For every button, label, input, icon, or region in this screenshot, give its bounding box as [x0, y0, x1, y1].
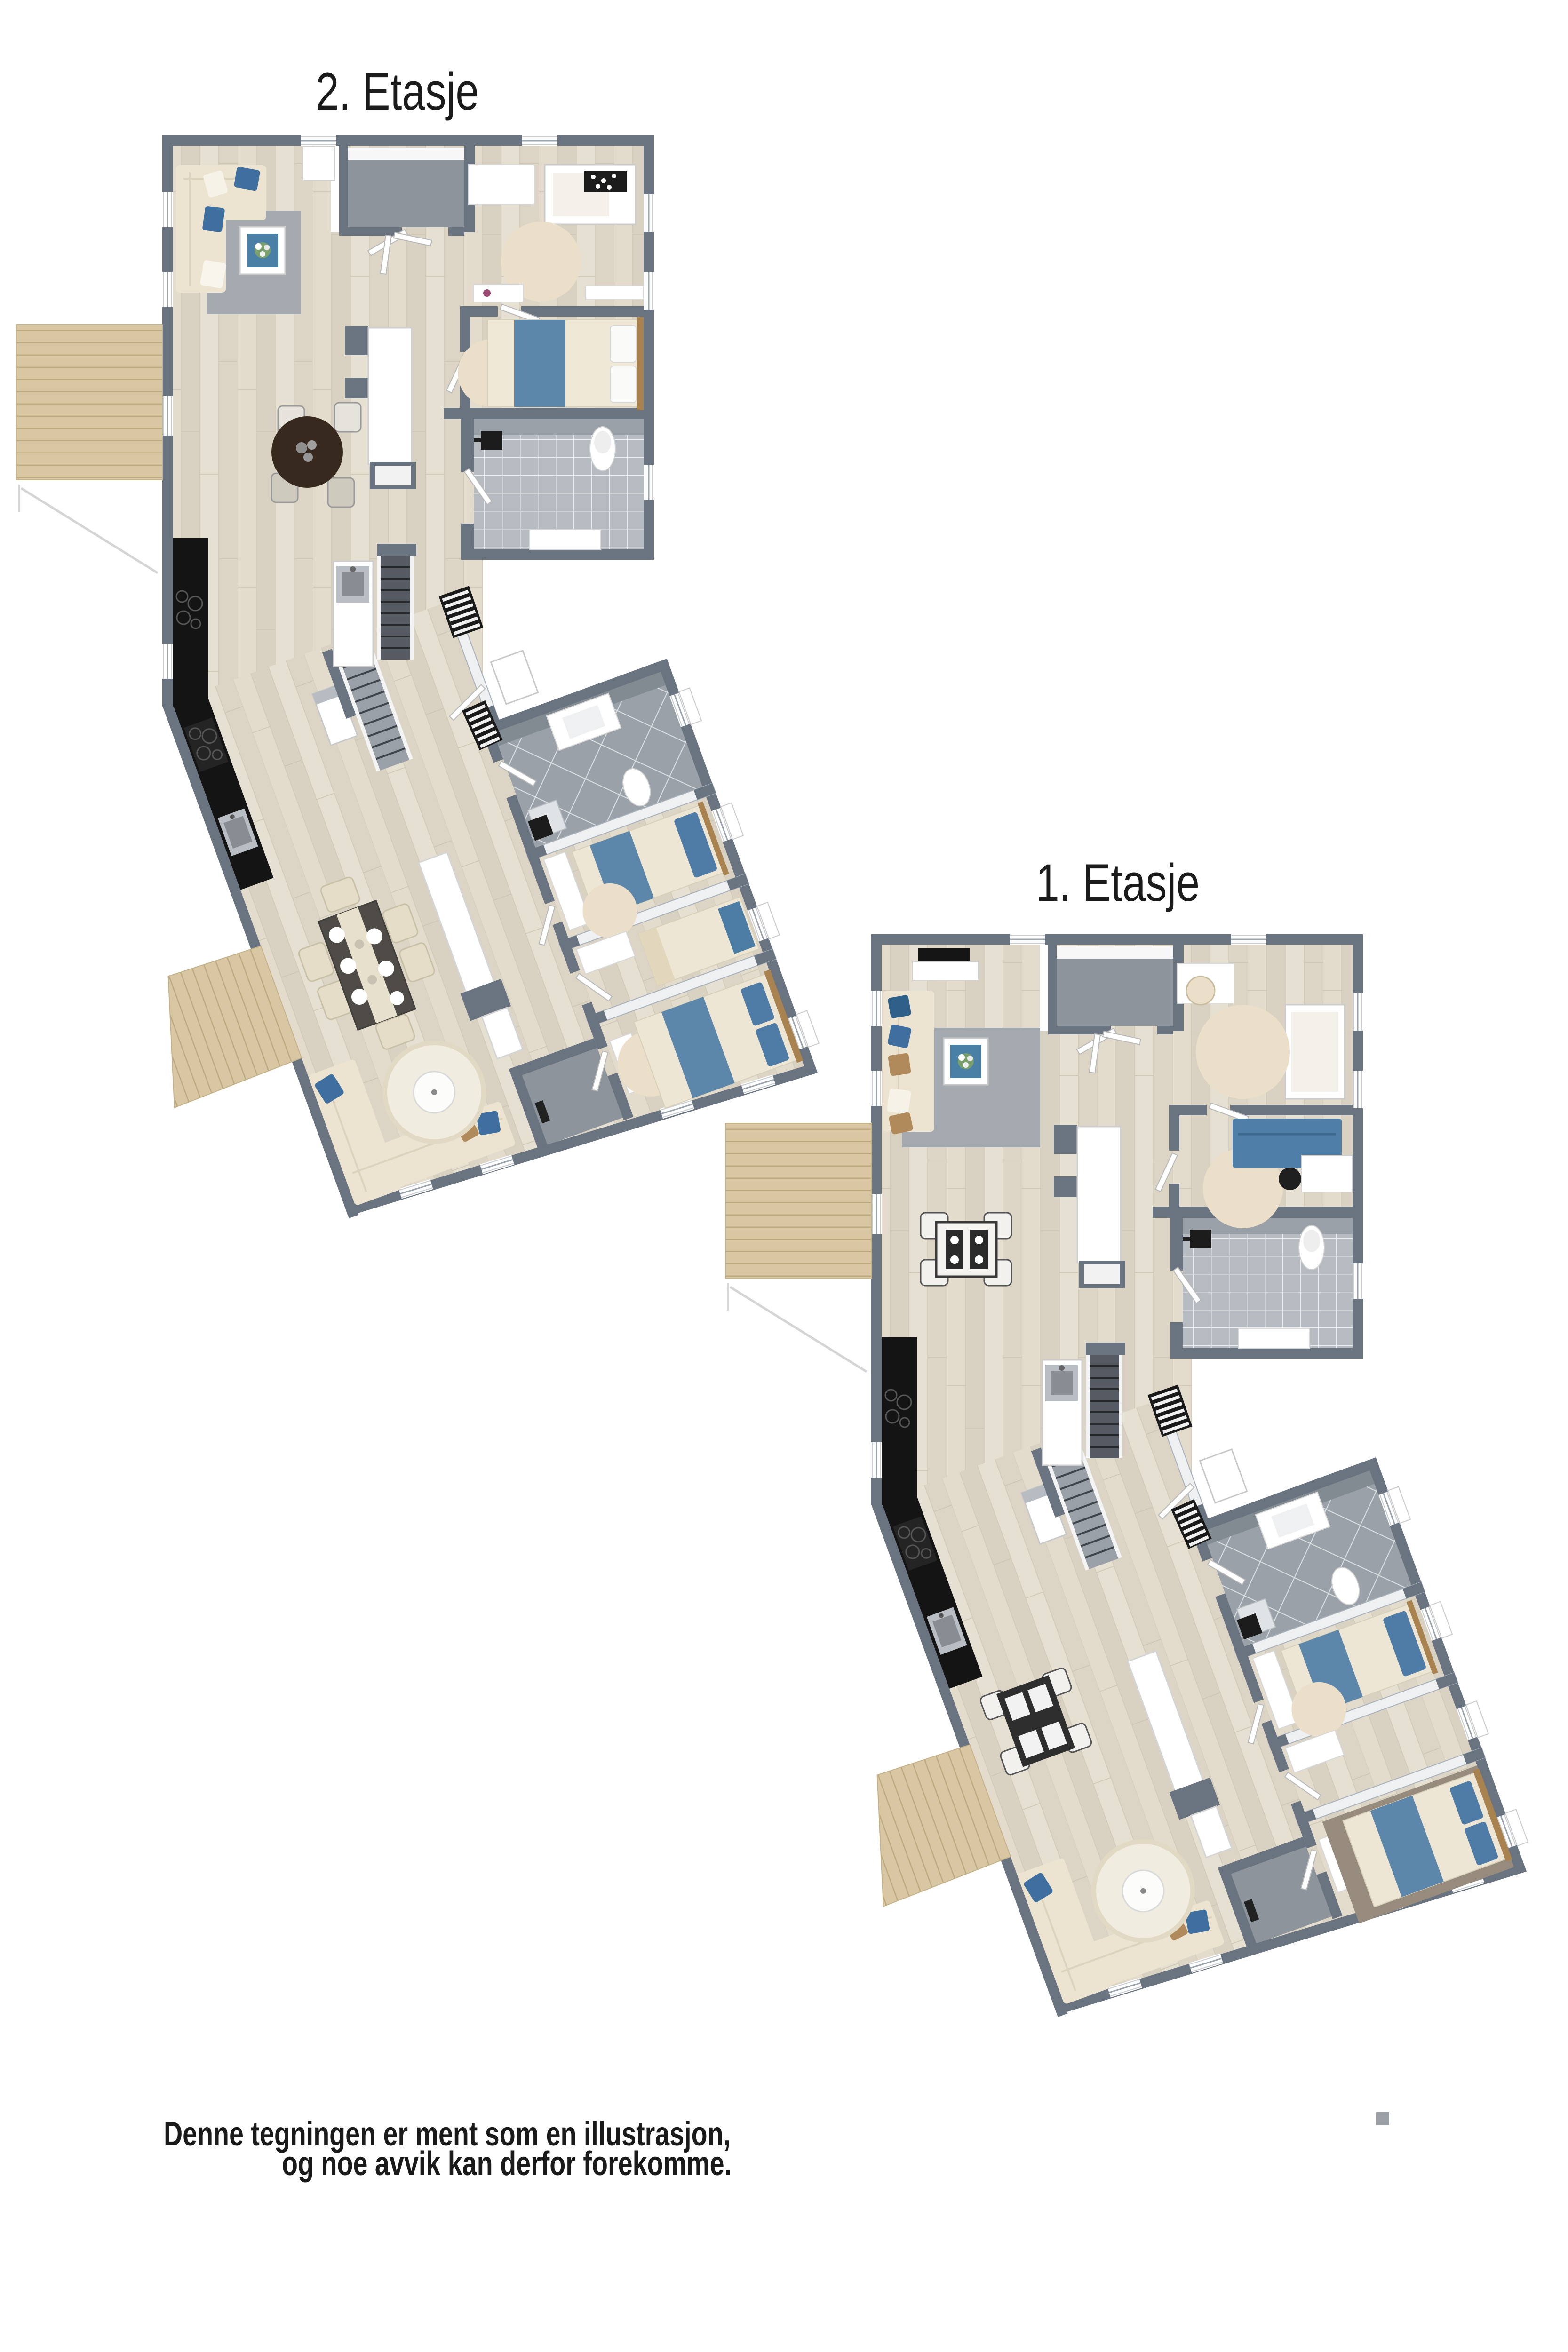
svg-text:1. Etasje: 1. Etasje: [1036, 853, 1200, 912]
svg-text:2. Etasje: 2. Etasje: [316, 62, 479, 121]
svg-text:og noe avvik kan derfor foreko: og noe avvik kan derfor forekomme.: [282, 2145, 732, 2183]
